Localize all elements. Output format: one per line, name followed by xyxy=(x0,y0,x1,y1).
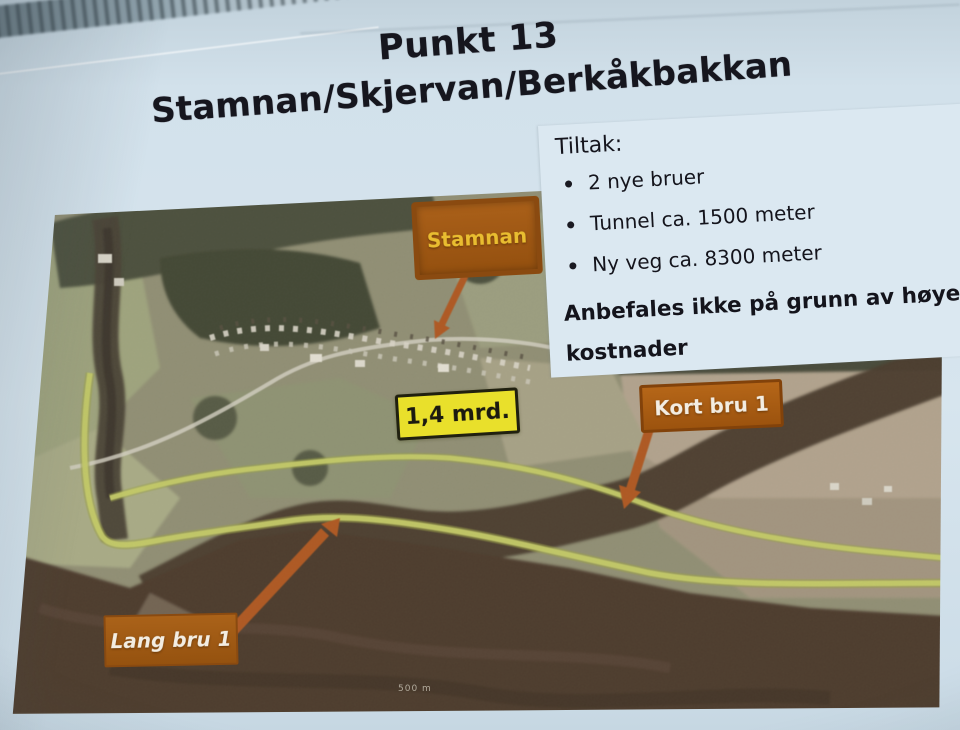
measure-item: Ny veg ca. 8300 meter xyxy=(561,233,960,278)
map-label-lang-bru: Lang bru 1 xyxy=(103,613,238,668)
map-scale-label: 500 m xyxy=(398,684,432,694)
measure-text: Ny veg ca. 8300 meter xyxy=(592,240,823,276)
bullet-icon xyxy=(569,262,576,269)
photo-frame: Punkt 13 Stamnan/Skjervan/Berkåkbakkan xyxy=(0,0,960,730)
map-label-kort-bru: Kort bru 1 xyxy=(639,379,784,433)
measure-text: 2 nye bruer xyxy=(587,164,704,194)
bullet-icon xyxy=(567,221,574,228)
map-label-cost: 1,4 mrd. xyxy=(395,387,521,440)
bullet-icon xyxy=(565,180,572,187)
measures-panel: Tiltak: 2 nye bruer Tunnel ca. 1500 mete… xyxy=(538,104,960,378)
measure-text: Tunnel ca. 1500 meter xyxy=(590,200,816,236)
measure-item: 2 nye bruer xyxy=(556,151,960,196)
map-label-stamnan: Stamnan xyxy=(411,196,543,281)
recommendation-text: Anbefales ikke på grunn av høye kostnade… xyxy=(563,274,960,374)
measures-list: 2 nye bruer Tunnel ca. 1500 meter Ny veg… xyxy=(556,151,960,278)
measure-item: Tunnel ca. 1500 meter xyxy=(559,192,960,237)
